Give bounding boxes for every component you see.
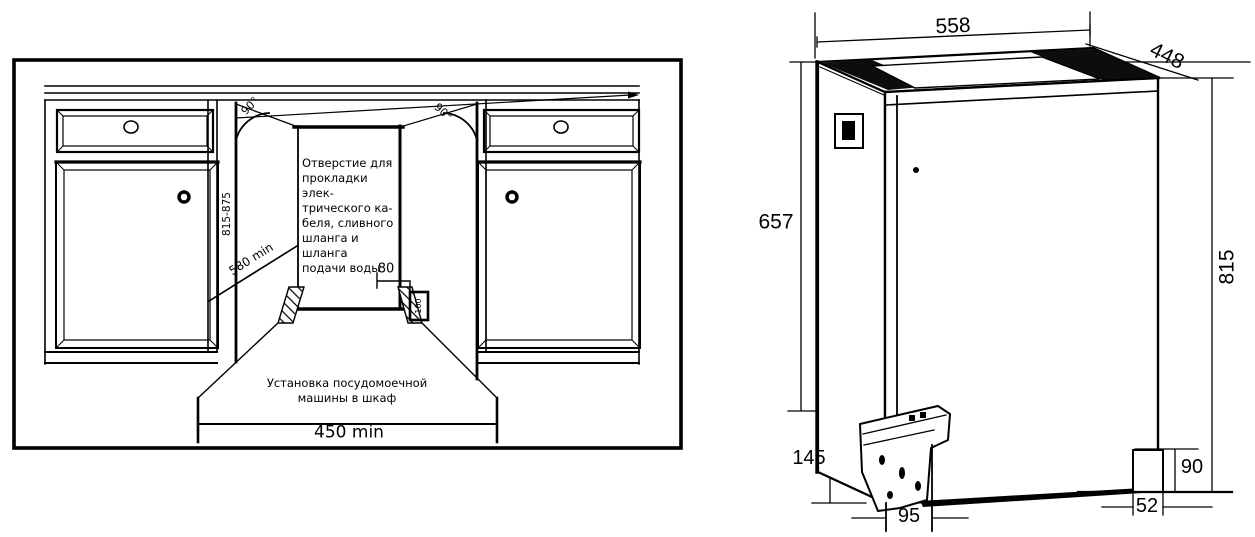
hose-opening-note: Отверстие для прокладки элек- трического…	[302, 156, 402, 276]
dim-base-height-145: 145	[792, 448, 825, 468]
dim-total-height-815: 815	[1217, 249, 1238, 284]
dim-front-foot-95: 95	[898, 506, 920, 526]
dim-rear-foot-height-90: 90	[1181, 457, 1203, 477]
dim-hole-height: 100	[415, 298, 423, 313]
line-art	[0, 0, 1255, 537]
dim-body-height-657: 657	[758, 212, 793, 233]
dim-niche-height-range: 815-875	[222, 192, 233, 236]
dim-hole-width: 80	[378, 263, 395, 276]
dishwasher-isometric-drawing	[788, 12, 1250, 531]
dishwasher-installation-figure: Отверстие для прокладки элек- трического…	[0, 0, 1255, 537]
dim-width-558: 558	[935, 15, 971, 38]
dim-niche-width-min: 450 min	[314, 425, 384, 442]
installation-caption: Установка посудомоечной машины в шкаф	[247, 376, 447, 406]
dim-rear-foot-52: 52	[1136, 496, 1158, 516]
